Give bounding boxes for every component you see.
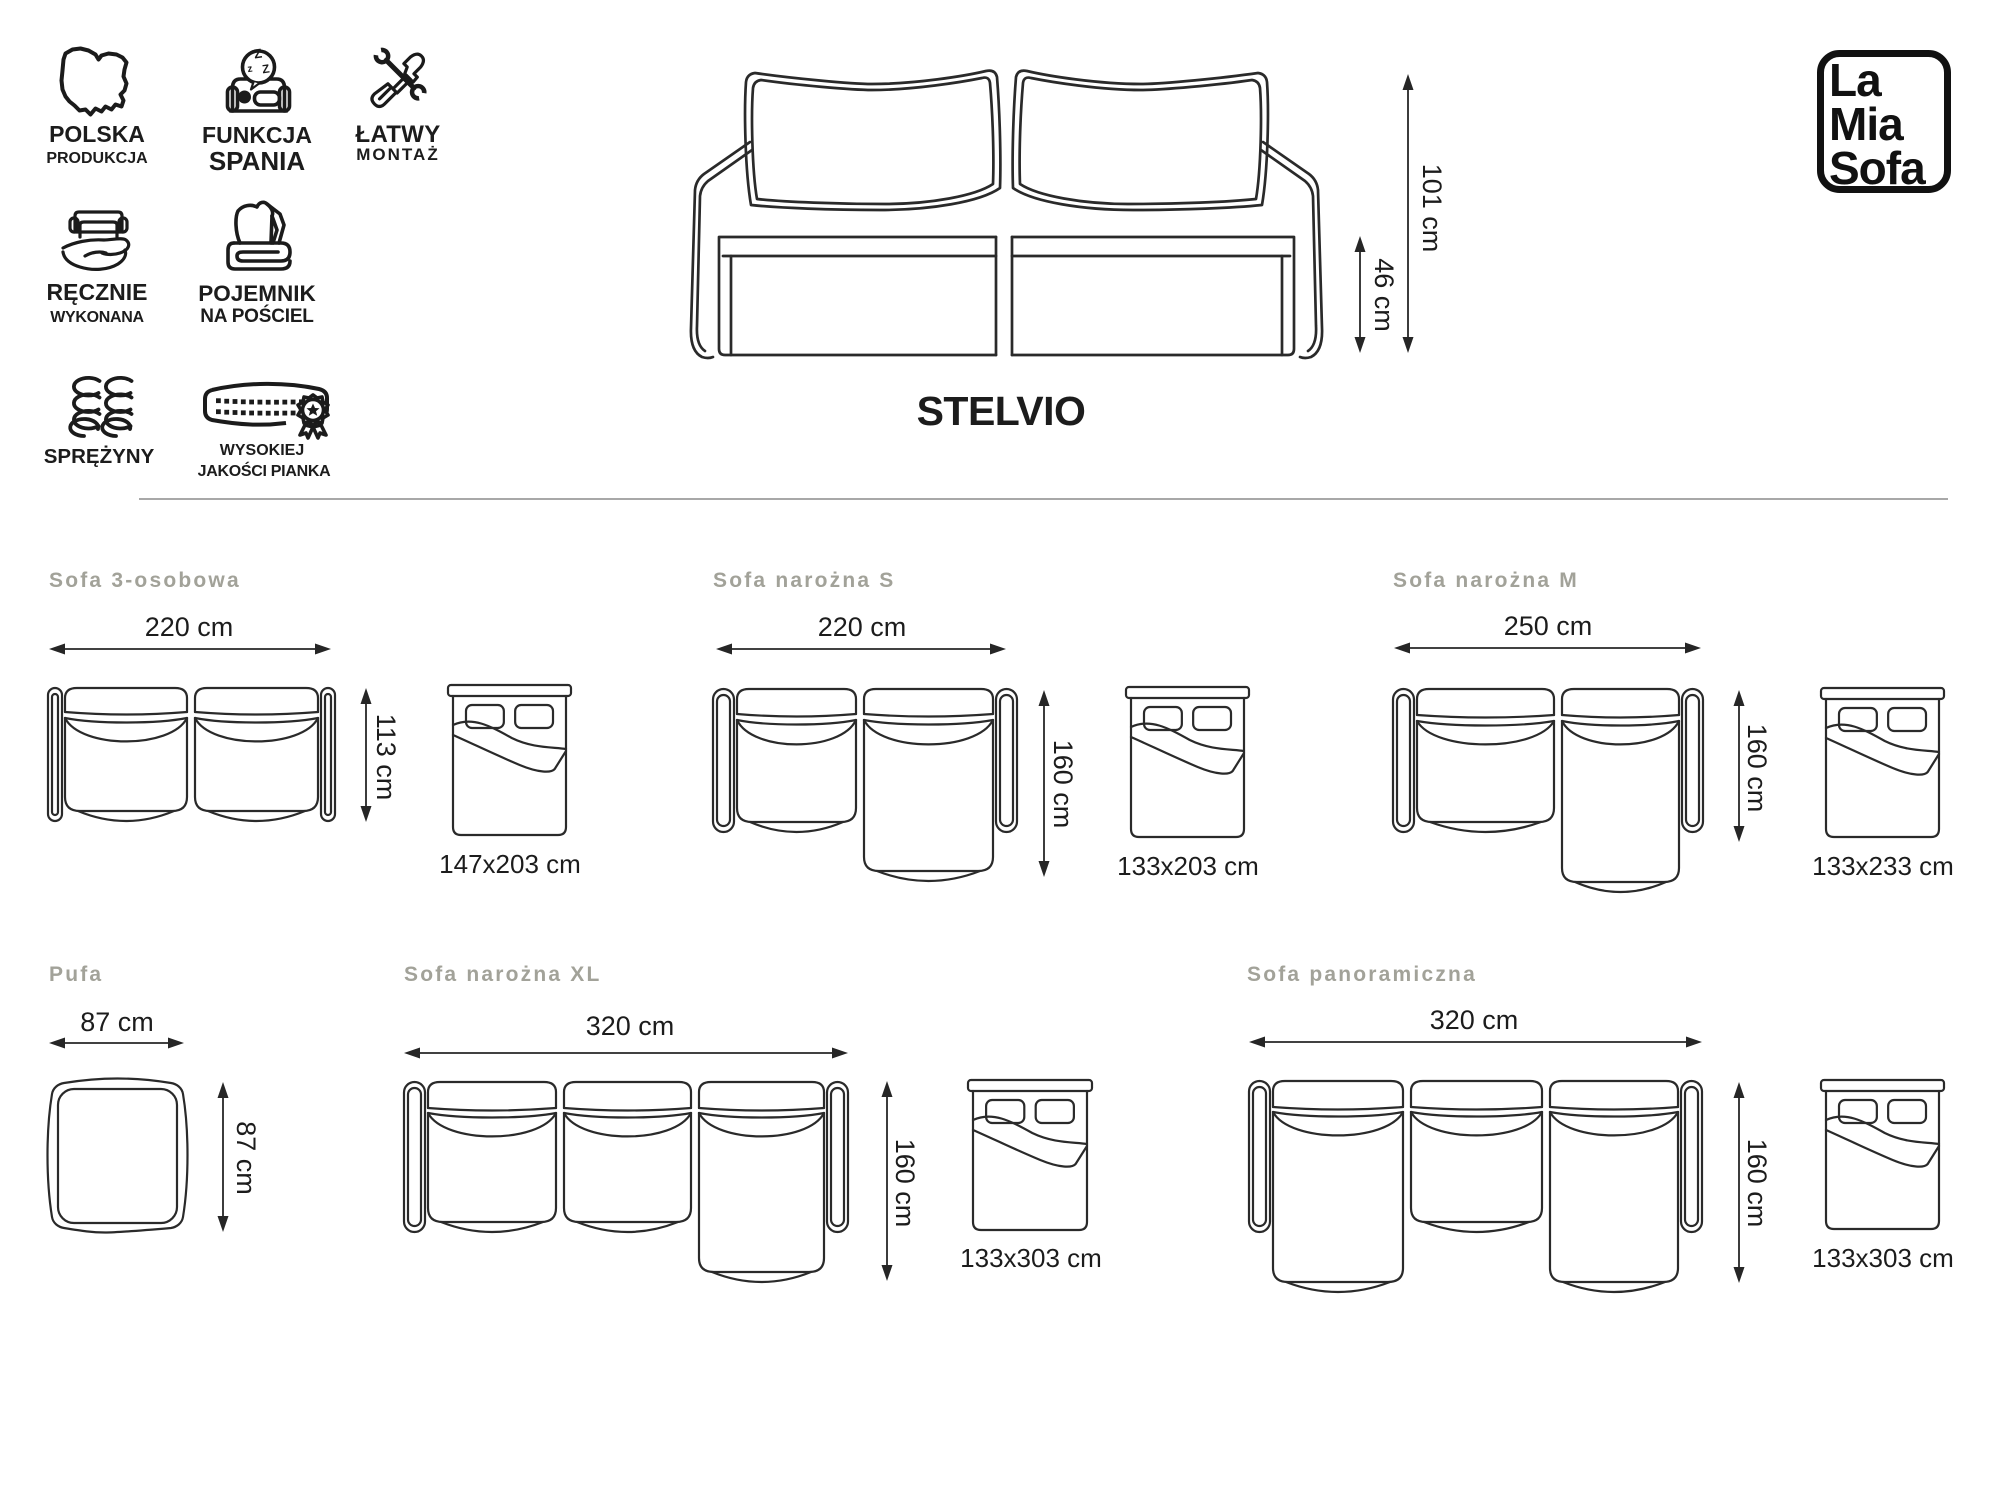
svg-text:FUNKCJA: FUNKCJA xyxy=(202,122,312,148)
svg-text:WYSOKIEJ: WYSOKIEJ xyxy=(220,442,304,459)
svg-text:220 cm: 220 cm xyxy=(818,612,907,642)
svg-text:133x303 cm: 133x303 cm xyxy=(960,1243,1102,1273)
svg-text:101 cm: 101 cm xyxy=(1417,164,1447,253)
svg-text:ŁATWY: ŁATWY xyxy=(355,121,440,148)
svg-text:133x303 cm: 133x303 cm xyxy=(1812,1243,1954,1273)
svg-text:PRODUKCJA: PRODUKCJA xyxy=(46,150,148,167)
svg-text:SPRĘŻYNY: SPRĘŻYNY xyxy=(44,445,155,468)
svg-text:160 cm: 160 cm xyxy=(1742,1139,1772,1228)
svg-text:147x203 cm: 147x203 cm xyxy=(439,849,581,879)
svg-text:JAKOŚCI PIANKA: JAKOŚCI PIANKA xyxy=(198,461,331,480)
svg-text:87 cm: 87 cm xyxy=(231,1121,261,1195)
svg-text:Sofa narożna XL: Sofa narożna XL xyxy=(404,963,602,986)
svg-text:320 cm: 320 cm xyxy=(1430,1005,1519,1035)
svg-text:160 cm: 160 cm xyxy=(1048,740,1078,829)
svg-text:POJEMNIK: POJEMNIK xyxy=(198,281,316,306)
svg-text:SPANIA: SPANIA xyxy=(209,146,306,176)
svg-text:WYKONANA: WYKONANA xyxy=(50,309,144,326)
svg-text:NA POŚCIEL: NA POŚCIEL xyxy=(200,305,314,327)
svg-text:Sofa: Sofa xyxy=(1829,142,1926,194)
svg-text:Sofa narożna S: Sofa narożna S xyxy=(713,569,896,592)
svg-text:POLSKA: POLSKA xyxy=(49,121,145,147)
svg-text:Sofa panoramiczna: Sofa panoramiczna xyxy=(1247,963,1477,986)
svg-text:220 cm: 220 cm xyxy=(145,612,234,642)
svg-text:160 cm: 160 cm xyxy=(1742,724,1772,813)
svg-text:133x203 cm: 133x203 cm xyxy=(1117,851,1259,881)
svg-text:Pufa: Pufa xyxy=(49,963,103,986)
svg-text:Sofa narożna M: Sofa narożna M xyxy=(1393,569,1579,592)
svg-text:160 cm: 160 cm xyxy=(890,1139,920,1228)
svg-text:87 cm: 87 cm xyxy=(80,1007,154,1037)
svg-text:MONTAŻ: MONTAŻ xyxy=(356,145,439,164)
svg-text:133x233 cm: 133x233 cm xyxy=(1812,851,1954,881)
svg-text:320 cm: 320 cm xyxy=(586,1011,675,1041)
svg-text:46 cm: 46 cm xyxy=(1369,258,1399,332)
svg-text:STELVIO: STELVIO xyxy=(917,388,1086,434)
svg-text:250 cm: 250 cm xyxy=(1504,611,1593,641)
svg-text:RĘCZNIE: RĘCZNIE xyxy=(47,279,148,305)
svg-text:113 cm: 113 cm xyxy=(371,714,401,801)
svg-text:Sofa 3-osobowa: Sofa 3-osobowa xyxy=(49,569,241,592)
